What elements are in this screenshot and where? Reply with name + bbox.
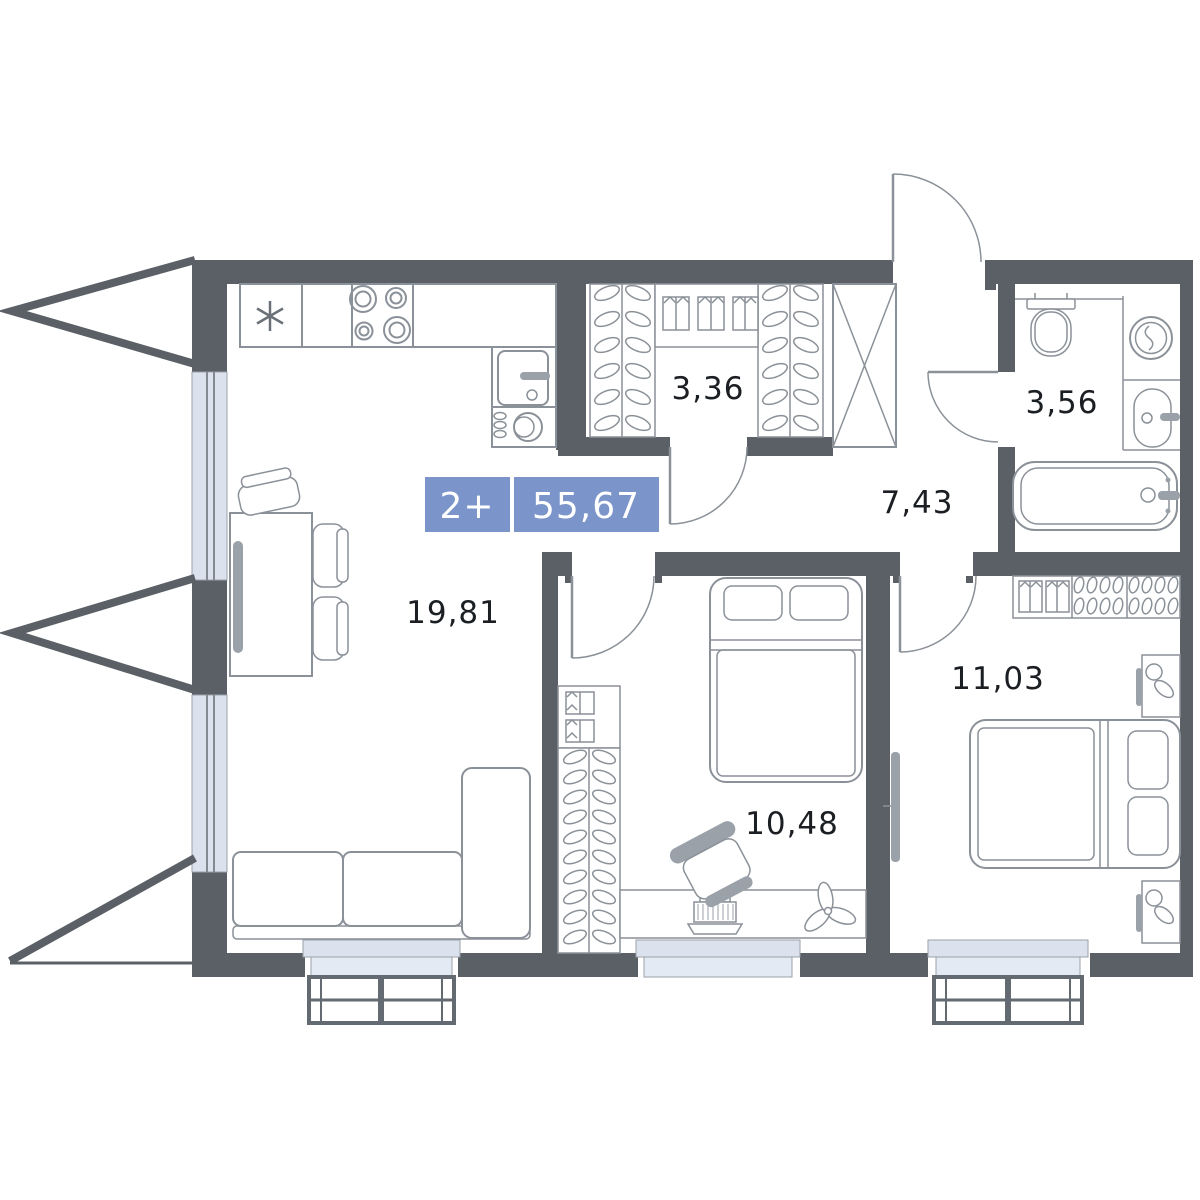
section-marker-top-icon xyxy=(12,260,195,364)
folded-clothes-icon xyxy=(663,297,758,330)
bathroom-area-label: 3,56 xyxy=(1025,385,1098,421)
floor-plan-canvas: 19,81 3,36 3,56 7,43 10,48 11,03 2+ 55,6… xyxy=(0,0,1200,1200)
toilet-icon xyxy=(1027,293,1075,356)
entrance-door xyxy=(893,174,981,262)
dining-table xyxy=(230,513,312,676)
section-marker-bottom-icon xyxy=(10,858,195,961)
closet-hangers-icon xyxy=(558,747,620,953)
bedroom-small-furniture xyxy=(558,578,866,953)
ventilation-shaft xyxy=(833,284,896,447)
wardrobe-area-label: 3,36 xyxy=(671,371,744,407)
living-kitchen-area-label: 19,81 xyxy=(406,595,500,631)
bathtub-icon xyxy=(1013,462,1180,530)
bedroom-large-furniture xyxy=(883,576,1180,943)
wardrobe-top xyxy=(1013,576,1180,618)
window-living xyxy=(303,940,460,977)
kitchen-sink-icon xyxy=(498,351,550,405)
bedroom-large-area-label: 11,03 xyxy=(951,661,1045,697)
hallway-area-label: 7,43 xyxy=(880,485,953,521)
wardrobe-door xyxy=(670,447,747,524)
badge-area-label: 55,67 xyxy=(532,486,640,527)
window-bedroom-small xyxy=(636,940,800,977)
bedroom-large-door xyxy=(900,576,976,652)
double-bed xyxy=(710,578,862,782)
section-marker-icons xyxy=(10,260,195,963)
bathroom-sink-icon xyxy=(1123,380,1180,450)
sofa xyxy=(233,768,530,939)
bedroom-small-door xyxy=(572,576,654,658)
window-bedroom-large xyxy=(928,940,1088,977)
closet-shelves xyxy=(558,686,620,748)
washing-machine-icon xyxy=(1123,296,1180,380)
badge-rooms-label: 2+ xyxy=(439,486,494,527)
apartment-badge: 2+ 55,67 xyxy=(425,477,659,532)
nightstand xyxy=(1136,655,1180,717)
balcony-railing-bedroom xyxy=(934,977,1082,1023)
bedroom-small-area-label: 10,48 xyxy=(745,806,839,842)
floor-plan: 19,81 3,36 3,56 7,43 10,48 11,03 2+ 55,6… xyxy=(0,0,1200,1200)
window-left-bottom xyxy=(192,695,227,872)
balcony-railing-living xyxy=(309,977,454,1023)
bathroom-door xyxy=(928,372,998,442)
window-left-top xyxy=(192,372,227,580)
double-bed xyxy=(970,720,1180,868)
wardrobe-room-closets xyxy=(590,283,823,437)
section-marker-middle-icon xyxy=(12,578,195,690)
nightstand xyxy=(1136,881,1180,943)
